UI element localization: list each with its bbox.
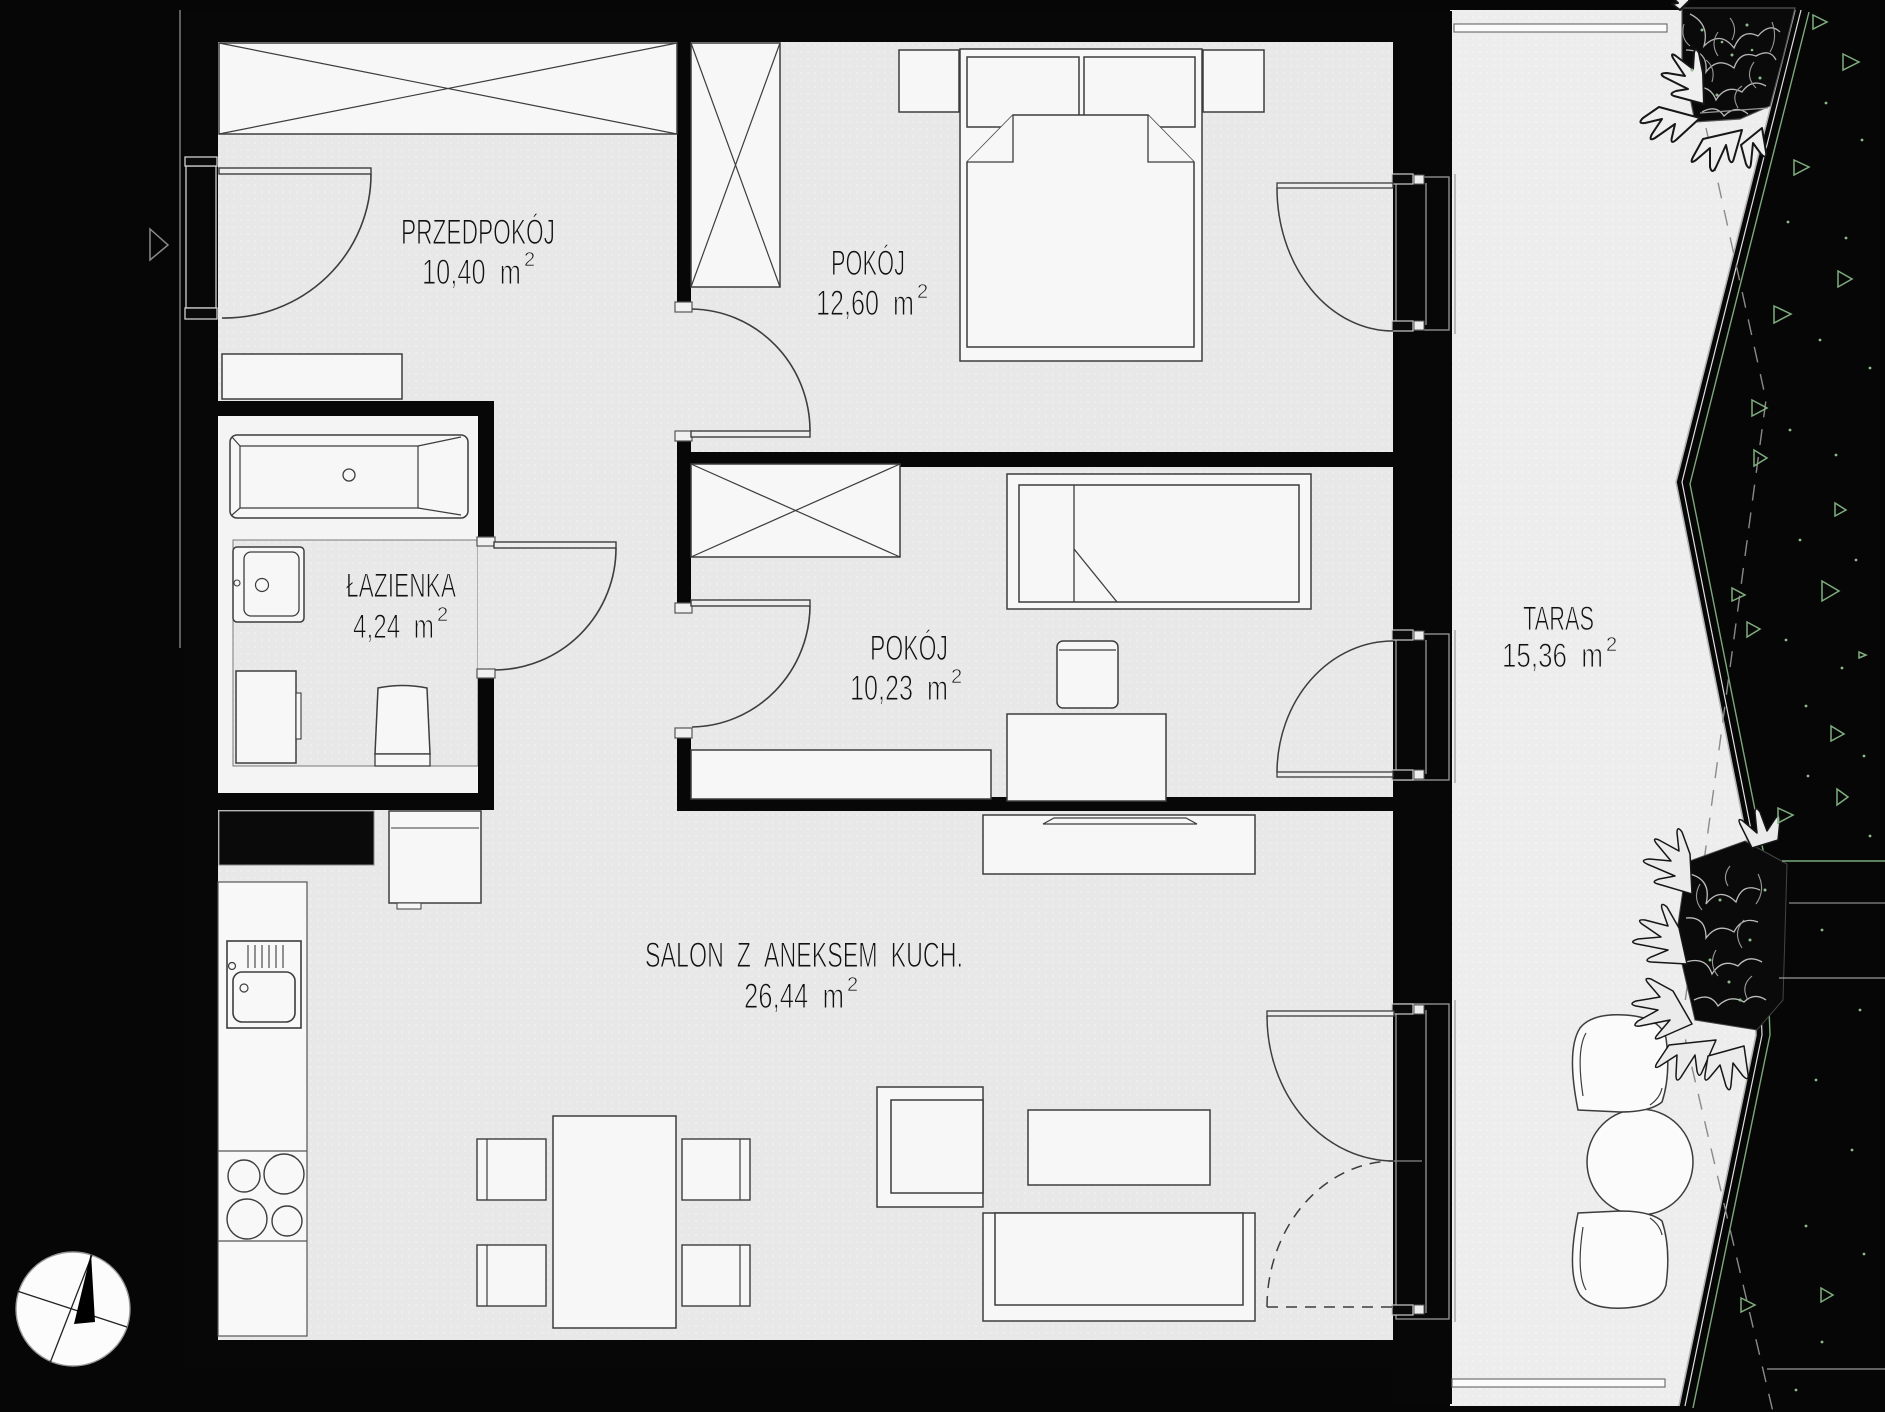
svg-text:2: 2 xyxy=(847,974,858,996)
svg-text:2: 2 xyxy=(917,281,928,303)
svg-text:12,60 m: 12,60 m xyxy=(816,284,914,323)
svg-text:2: 2 xyxy=(524,249,535,271)
svg-text:4,24 m: 4,24 m xyxy=(353,608,434,646)
svg-text:2: 2 xyxy=(437,604,448,626)
svg-text:10,23 m: 10,23 m xyxy=(850,669,948,708)
svg-text:SALON Z ANEKSEM KUCH.: SALON Z ANEKSEM KUCH. xyxy=(645,936,963,975)
svg-text:POKÓJ: POKÓJ xyxy=(831,244,905,283)
svg-text:2: 2 xyxy=(951,666,962,688)
svg-text:ŁAZIENKA: ŁAZIENKA xyxy=(346,567,456,605)
svg-text:PRZEDPOKÓJ: PRZEDPOKÓJ xyxy=(401,213,555,252)
svg-text:TARAS: TARAS xyxy=(1523,600,1594,638)
svg-text:26,44 m: 26,44 m xyxy=(744,977,844,1016)
svg-text:POKÓJ: POKÓJ xyxy=(870,629,948,668)
svg-text:15,36 m: 15,36 m xyxy=(1502,637,1603,675)
svg-text:10,40 m: 10,40 m xyxy=(422,253,521,292)
svg-text:2: 2 xyxy=(1606,634,1617,656)
